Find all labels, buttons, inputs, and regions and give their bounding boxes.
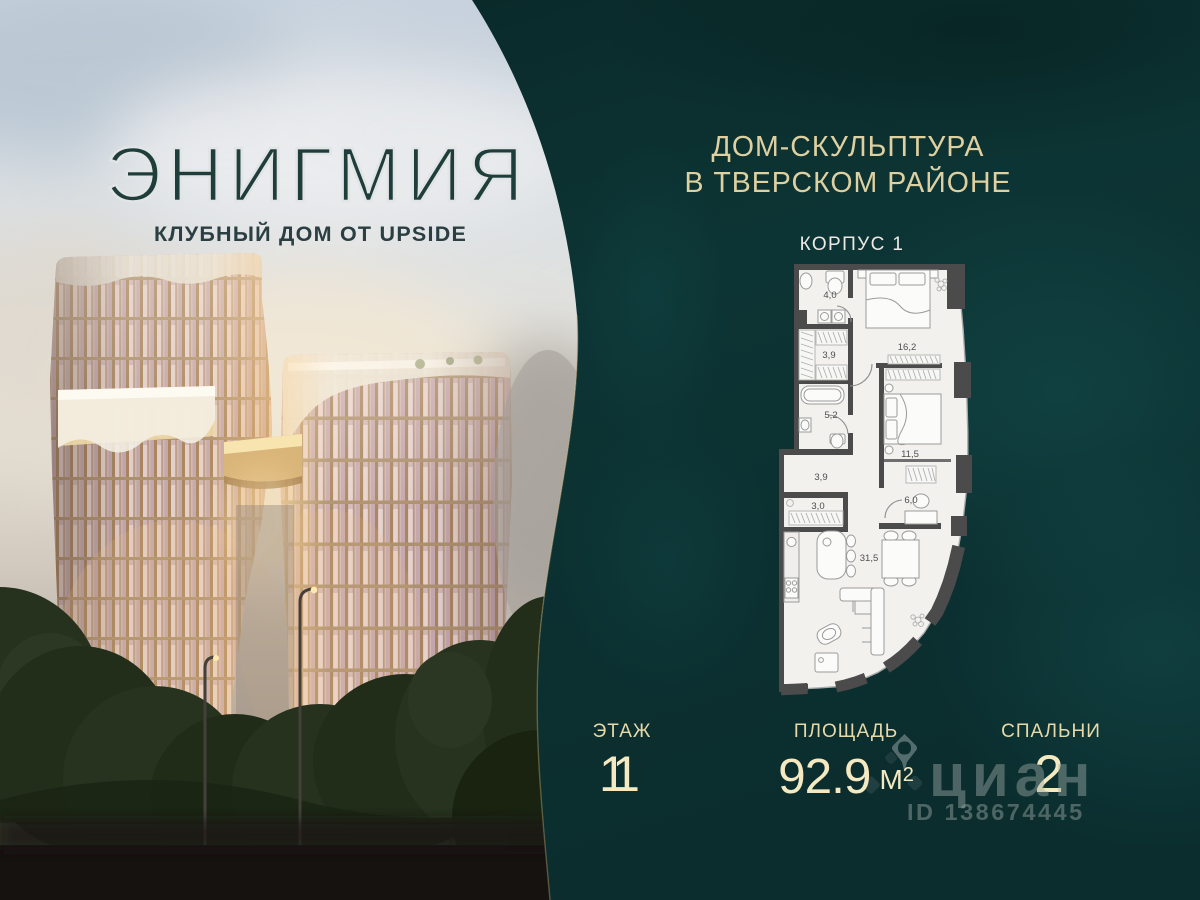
svg-text:3,0: 3,0: [811, 501, 824, 512]
svg-text:3,9: 3,9: [814, 472, 827, 483]
svg-text:3,9: 3,9: [822, 350, 835, 361]
svg-text:5,2: 5,2: [824, 410, 837, 421]
svg-text:31,5: 31,5: [860, 553, 879, 564]
svg-text:4,0: 4,0: [823, 290, 836, 301]
svg-text:6,0: 6,0: [904, 495, 917, 506]
svg-text:16,2: 16,2: [898, 342, 917, 353]
svg-text:11,5: 11,5: [901, 449, 919, 460]
